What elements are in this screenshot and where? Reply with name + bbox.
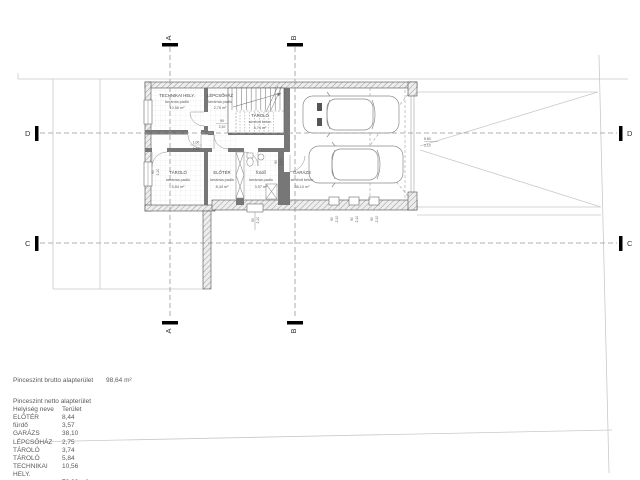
summary-row: TÁROLÓ 3,74 bbox=[13, 447, 233, 455]
svg-text:2,13: 2,13 bbox=[193, 147, 200, 151]
dim-exit-eloter: 90 2,10 bbox=[251, 217, 260, 224]
svg-text:38,10 m²: 38,10 m² bbox=[295, 185, 311, 189]
summary-row: TECHNIKAI HELY. 10,56 bbox=[13, 463, 233, 479]
svg-text:2,10: 2,10 bbox=[256, 217, 260, 224]
svg-text:ELŐTÉR: ELŐTÉR bbox=[213, 170, 230, 175]
svg-text:kerámia padló: kerámia padló bbox=[166, 178, 190, 182]
svg-text:TÁROLÓ: TÁROLÓ bbox=[251, 113, 269, 118]
svg-text:kerámia padló: kerámia padló bbox=[208, 100, 232, 104]
dim-niche-2: 90 2,10 bbox=[350, 216, 359, 223]
svg-text:2,10: 2,10 bbox=[375, 216, 379, 223]
section-marker-b-top: B bbox=[289, 35, 298, 40]
dim-niche-1: 90 2,10 bbox=[330, 216, 339, 223]
svg-text:1,00: 1,00 bbox=[193, 141, 200, 145]
svg-text:TECHNIKAI HELY.: TECHNIKAI HELY. bbox=[159, 93, 195, 98]
driveway-sight-line-upper bbox=[420, 92, 598, 146]
svg-text:2,10: 2,10 bbox=[219, 125, 226, 129]
brutto-value: 98,64 m² bbox=[106, 377, 233, 385]
svg-text:8,44 m²: 8,44 m² bbox=[216, 185, 230, 189]
svg-text:10,56 m²: 10,56 m² bbox=[170, 106, 186, 110]
svg-text:90: 90 bbox=[330, 217, 334, 221]
svg-text:90: 90 bbox=[220, 119, 224, 123]
exit-eloter-opening bbox=[247, 204, 263, 212]
car-1 bbox=[303, 92, 399, 137]
svg-text:2,10: 2,10 bbox=[279, 159, 283, 166]
svg-text:90: 90 bbox=[274, 160, 278, 164]
brutto-label: Pinceszint brutto alapterület bbox=[13, 377, 106, 385]
svg-text:2,75 m²: 2,75 m² bbox=[214, 106, 228, 110]
floor-plan-sheet: A A B B D D C C TECHNIKAI HELY. kerámia … bbox=[0, 0, 640, 480]
col-area: Terület bbox=[62, 406, 233, 414]
niche-1 bbox=[329, 197, 339, 205]
wall-right-pier-top bbox=[408, 82, 417, 96]
section-marker-c-right: C bbox=[627, 239, 633, 248]
svg-text:90: 90 bbox=[151, 170, 155, 174]
summary-row: LÉPCSŐHÁZ 2,75 bbox=[13, 439, 233, 447]
summary-row: TÁROLÓ 5,84 bbox=[13, 455, 233, 463]
section-marker-a-bottom: A bbox=[164, 328, 173, 333]
shaft bbox=[236, 152, 244, 198]
svg-text:5,50: 5,50 bbox=[424, 137, 431, 141]
car-2 bbox=[309, 142, 403, 187]
svg-text:LÉPCSŐHÁZ: LÉPCSŐHÁZ bbox=[207, 93, 233, 98]
svg-text:3,57 m²: 3,57 m² bbox=[255, 185, 269, 189]
svg-text:2,10: 2,10 bbox=[355, 216, 359, 223]
svg-text:GARÁZS: GARÁZS bbox=[293, 170, 311, 175]
car-1-seat bbox=[317, 103, 322, 111]
section-marker-c-left: C bbox=[25, 239, 31, 248]
wc-bowl bbox=[247, 158, 253, 166]
summary-row: GARÁZS 38,10 bbox=[13, 430, 233, 438]
section-marker-d-left: D bbox=[25, 129, 31, 138]
brutto-area-line: Pinceszint brutto alapterület 98,64 m² bbox=[13, 377, 233, 385]
svg-text:2,10: 2,10 bbox=[335, 216, 339, 223]
wall-bottom-left bbox=[145, 205, 215, 211]
summary-row: fürdő 3,57 bbox=[13, 422, 233, 430]
wc-tank bbox=[247, 153, 253, 158]
room-label-garazs: GARÁZS simított beton 38,10 m² bbox=[291, 170, 314, 189]
svg-text:90: 90 bbox=[350, 217, 354, 221]
netto-label: Pinceszint netto alapterület bbox=[13, 398, 233, 406]
svg-text:kerámia padló: kerámia padló bbox=[249, 178, 273, 182]
section-marker-b-bottom: B bbox=[289, 328, 298, 333]
summary-header-row: Helyiség neve Terület bbox=[13, 406, 233, 414]
svg-text:2,10: 2,10 bbox=[424, 144, 431, 148]
driveway-sight-line-lower bbox=[420, 150, 601, 207]
site-boundary-line bbox=[599, 55, 609, 473]
svg-text:TÁROLÓ: TÁROLÓ bbox=[169, 170, 187, 175]
wall-stub-down bbox=[203, 211, 211, 289]
niche-2 bbox=[349, 197, 359, 205]
area-summary: Pinceszint brutto alapterület 98,64 m² P… bbox=[13, 377, 233, 480]
svg-text:simított beton: simított beton bbox=[291, 178, 314, 182]
svg-text:2,10: 2,10 bbox=[156, 169, 160, 176]
wall-right-pier-bottom bbox=[408, 192, 417, 210]
svg-text:simított beton: simított beton bbox=[249, 120, 272, 124]
svg-text:90: 90 bbox=[251, 218, 255, 222]
section-marker-d-right: D bbox=[627, 129, 633, 138]
svg-text:kerámia padló: kerámia padló bbox=[165, 100, 189, 104]
summary-row: ELŐTÉR 8,44 bbox=[13, 414, 233, 422]
svg-text:90: 90 bbox=[370, 217, 374, 221]
washbasin bbox=[258, 154, 264, 160]
section-marker-a-top: A bbox=[164, 35, 173, 40]
niche-3 bbox=[369, 197, 379, 205]
svg-text:3,74 m²: 3,74 m² bbox=[254, 126, 268, 130]
svg-text:kerámia padló: kerámia padló bbox=[210, 178, 234, 182]
wall-top bbox=[145, 82, 417, 88]
car-1-seat bbox=[317, 118, 322, 126]
svg-text:fürdő: fürdő bbox=[256, 170, 266, 175]
dim-niche-3: 90 2,10 bbox=[370, 216, 379, 223]
svg-text:5,84 m²: 5,84 m² bbox=[172, 185, 186, 189]
